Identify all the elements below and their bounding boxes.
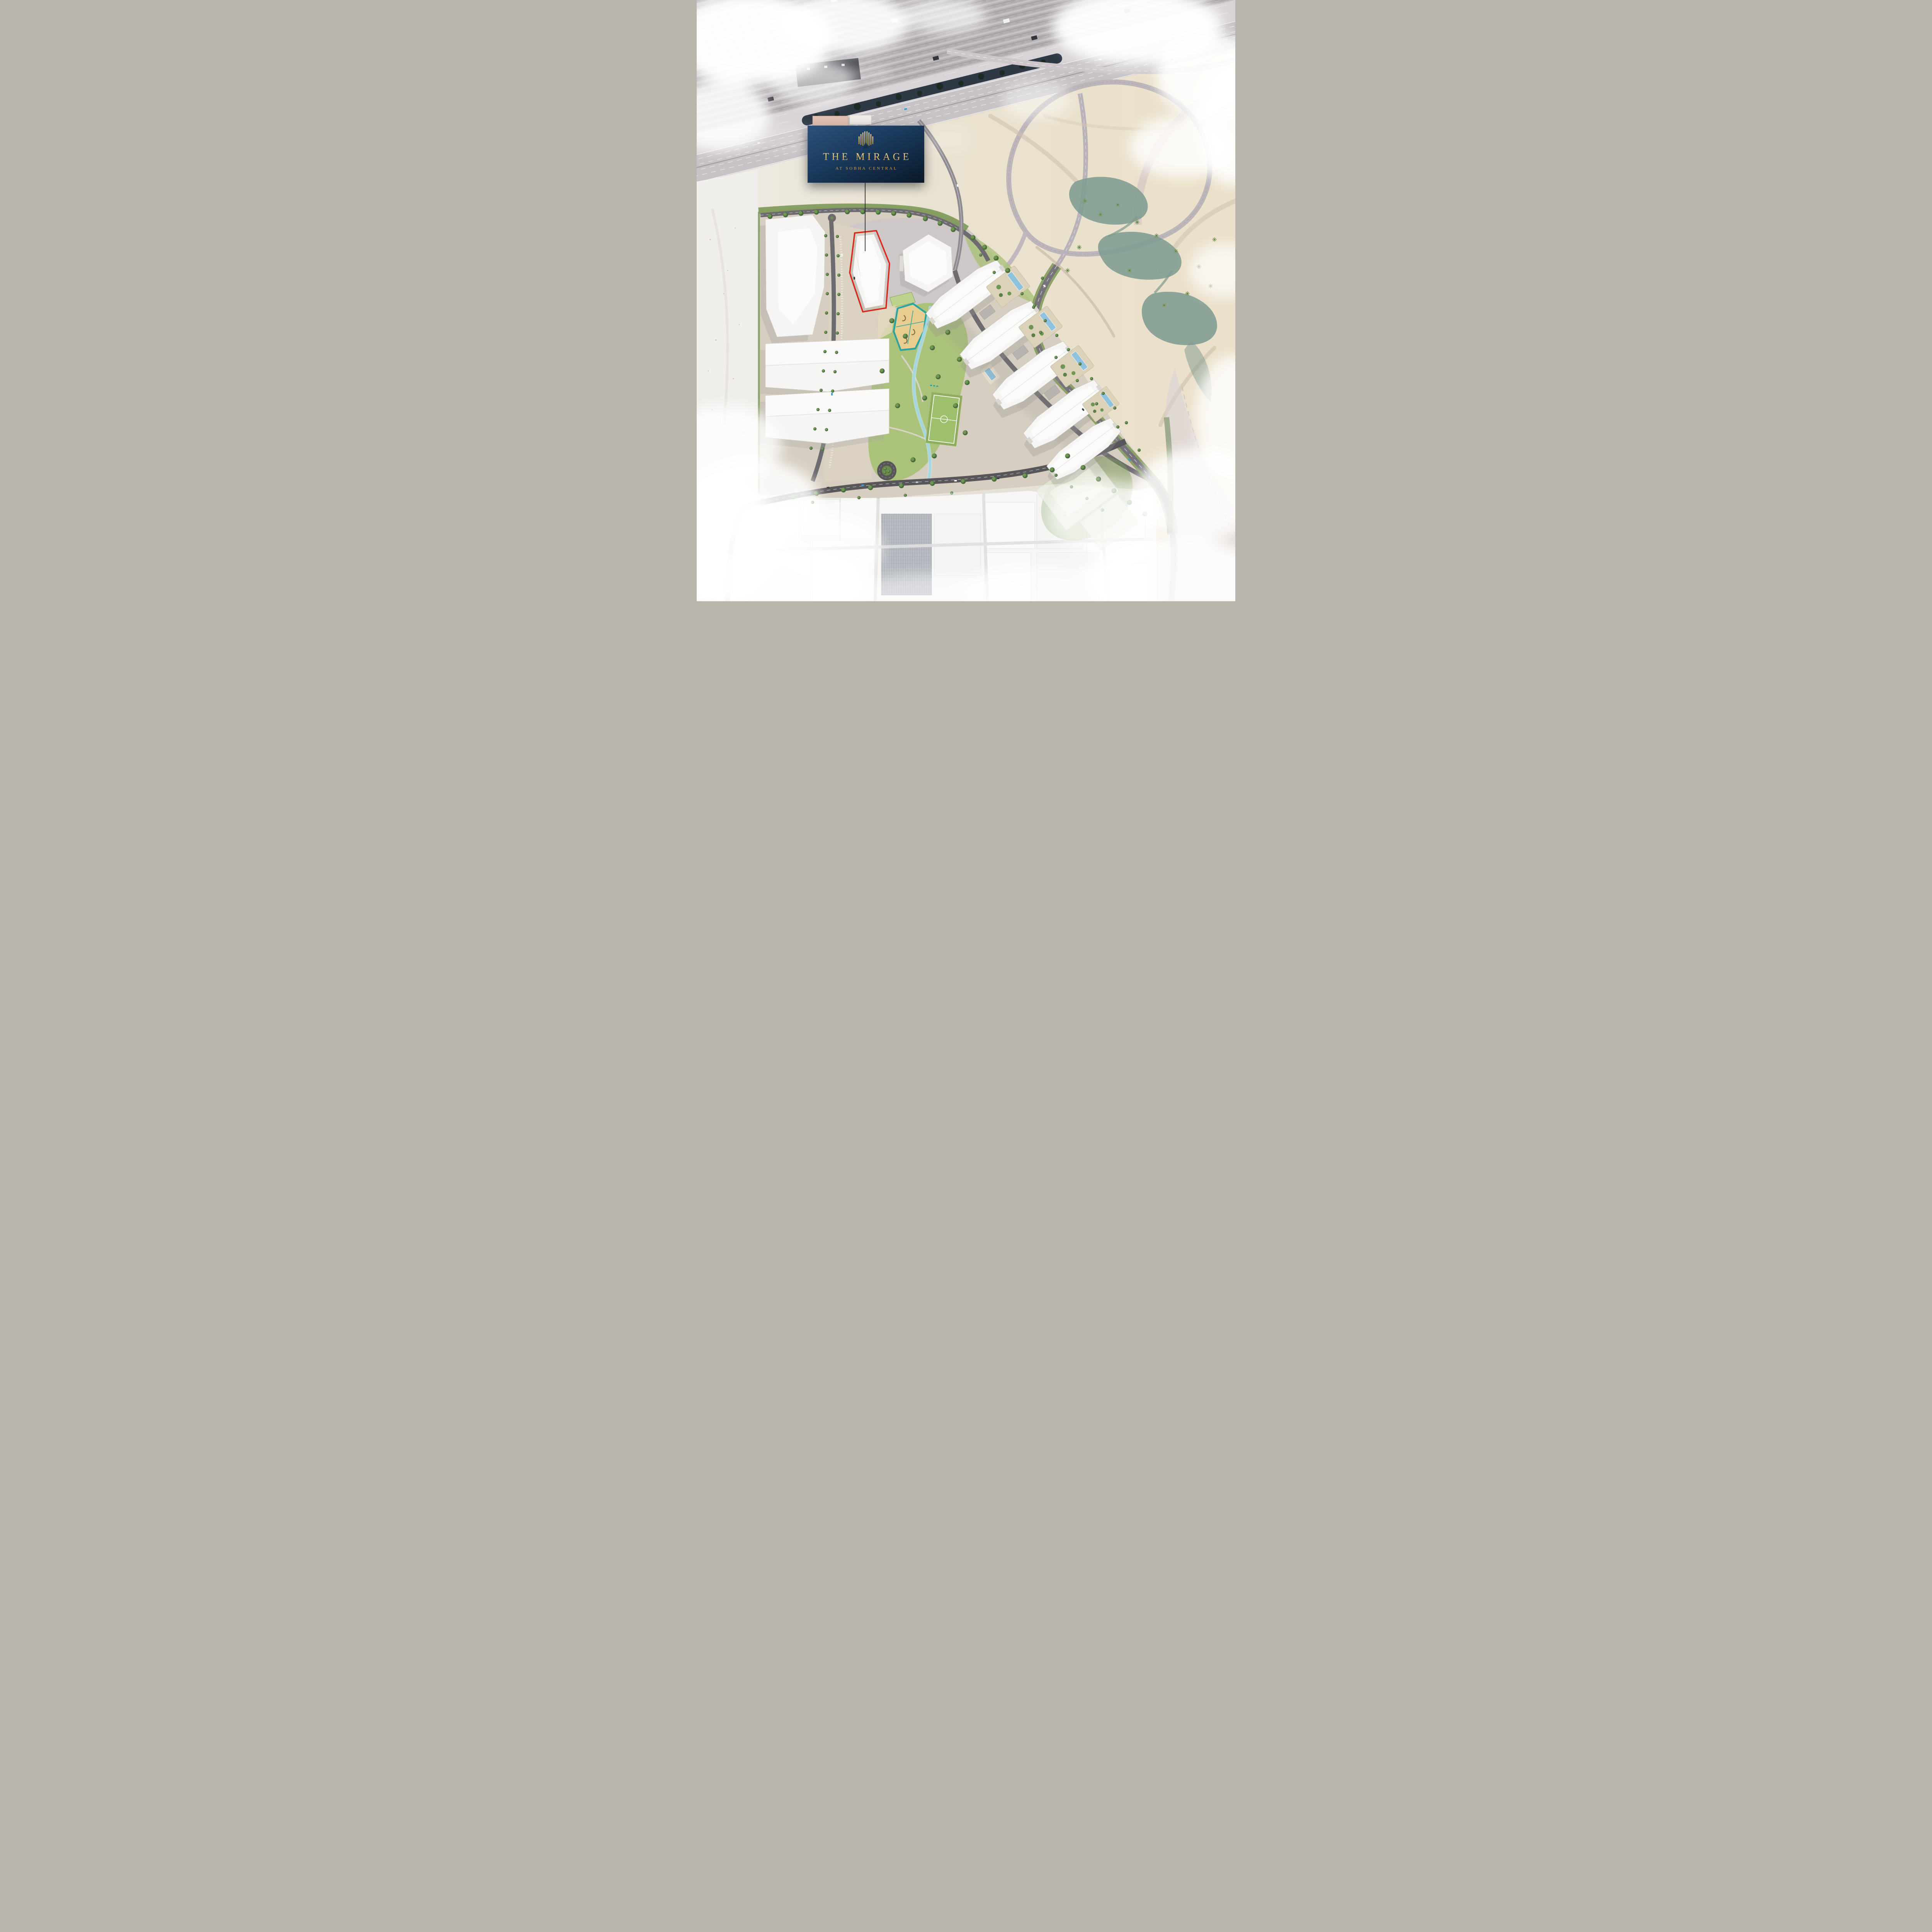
badge-subtitle: AT SOBHA CENTRAL — [834, 167, 898, 171]
aerial-masterplan: THE MIRAGE AT SOBHA CENTRAL — [697, 0, 1235, 601]
masterplan-canvas — [697, 0, 1235, 601]
pink-building — [813, 115, 871, 126]
project-badge: THE MIRAGE AT SOBHA CENTRAL — [808, 126, 924, 183]
sports-field — [925, 392, 962, 447]
roundabout — [877, 461, 896, 480]
badge-title: THE MIRAGE — [820, 152, 912, 162]
mirage-logo-icon — [857, 131, 875, 148]
entry-junction — [828, 214, 836, 222]
